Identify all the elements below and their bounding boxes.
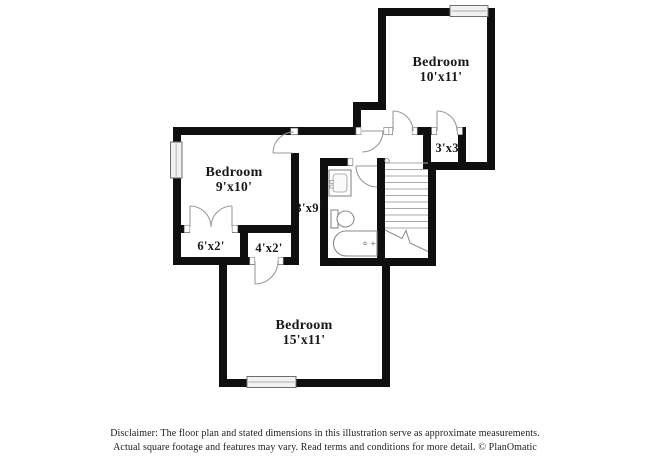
wall-segment bbox=[219, 257, 227, 387]
wall-segment bbox=[378, 8, 386, 110]
disclaimer: Disclaimer: The floor plan and stated di… bbox=[110, 428, 540, 453]
door-jamb bbox=[184, 225, 190, 232]
door-jamb bbox=[348, 158, 353, 165]
door-hall-closet bbox=[362, 131, 383, 152]
wall-segment bbox=[487, 8, 495, 170]
wall-segment bbox=[173, 257, 255, 265]
bathroom-fixtures bbox=[329, 170, 377, 256]
door-jamb bbox=[356, 127, 361, 134]
wall-segment bbox=[240, 233, 248, 259]
door-jamb bbox=[291, 128, 298, 134]
wall-segment bbox=[377, 158, 385, 258]
bedroom-9x10-dims: 9'x10' bbox=[216, 179, 252, 194]
door-bedroom-9x10 bbox=[273, 132, 294, 153]
floor-plan-image: Bedroom 10'x11' 3'x3' Bedroom 9'x10' 3'x… bbox=[0, 0, 650, 473]
bedroom-10x11-name: Bedroom bbox=[412, 55, 469, 70]
closet-4x2-dims: 4'x2' bbox=[255, 241, 282, 255]
floor-plan-svg: Bedroom 10'x11' 3'x3' Bedroom 9'x10' 3'x… bbox=[0, 0, 650, 473]
sink-vanity-icon bbox=[329, 170, 351, 196]
disclaimer-line-1: Disclaimer: The floor plan and stated di… bbox=[110, 428, 540, 439]
stair-newel bbox=[385, 159, 389, 163]
bedroom-15x11-name: Bedroom bbox=[275, 318, 332, 333]
wall-segment bbox=[428, 166, 436, 258]
double-door-closet-6x2 bbox=[190, 206, 232, 227]
door-bathroom bbox=[356, 166, 377, 187]
door-bedroom-10x11 bbox=[393, 111, 413, 131]
bedroom-10x11-dims: 10'x11' bbox=[420, 69, 463, 84]
toilet-icon bbox=[331, 210, 354, 228]
closet-6x2-dims: 6'x2' bbox=[197, 239, 224, 253]
door-jamb bbox=[250, 257, 255, 264]
bathtub-icon bbox=[334, 231, 378, 256]
disclaimer-line-2: Actual square footage and features may v… bbox=[113, 442, 537, 453]
window-bedroom-9x10 bbox=[171, 142, 183, 178]
door-jamb bbox=[457, 127, 462, 134]
door-closet-3x3 bbox=[437, 111, 457, 131]
wall-segment bbox=[219, 379, 390, 387]
wall-segment bbox=[232, 225, 299, 233]
bedroom-15x11-dims: 15'x11' bbox=[283, 332, 326, 347]
door-jamb bbox=[278, 257, 283, 264]
wall-segment bbox=[173, 127, 353, 135]
door-jamb bbox=[232, 225, 238, 232]
closet-3x3-dims: 3'x3' bbox=[435, 141, 462, 155]
door-closet-4x2 bbox=[255, 261, 278, 284]
window-bedroom-10x11 bbox=[450, 6, 488, 17]
bedroom-9x10-name: Bedroom bbox=[205, 165, 262, 180]
wall-segment bbox=[320, 258, 436, 266]
staircase bbox=[385, 159, 428, 252]
door-jamb bbox=[384, 127, 389, 134]
hallway-dims: 3'x9' bbox=[295, 201, 322, 215]
window-bedroom-15x11 bbox=[247, 377, 296, 388]
wall-segment bbox=[382, 258, 390, 387]
door-jamb bbox=[432, 127, 437, 134]
